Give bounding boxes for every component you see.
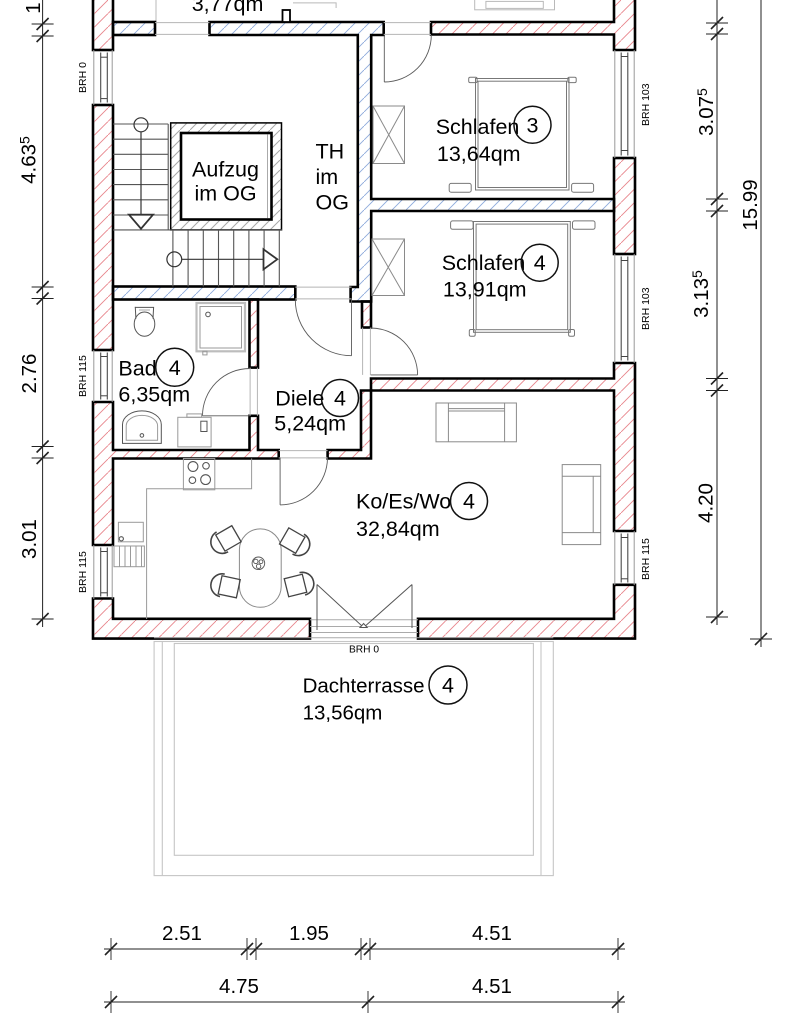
svg-text:BRH 0: BRH 0	[349, 645, 379, 656]
svg-text:4: 4	[534, 251, 546, 275]
svg-text:3: 3	[527, 113, 539, 137]
svg-text:13,56qm: 13,56qm	[303, 702, 383, 725]
svg-text:BRH 0: BRH 0	[77, 62, 89, 93]
svg-text:Schlafen: Schlafen	[442, 251, 526, 275]
svg-text:3.01: 3.01	[18, 519, 41, 559]
svg-text:TH: TH	[316, 139, 345, 163]
svg-text:BRH 115: BRH 115	[77, 355, 89, 397]
svg-text:Dachterrasse: Dachterrasse	[303, 674, 425, 697]
svg-text:im OG: im OG	[194, 182, 256, 206]
svg-text:BRH 115: BRH 115	[640, 538, 652, 580]
svg-text:4.20: 4.20	[695, 483, 718, 523]
svg-text:2.76: 2.76	[18, 354, 41, 394]
svg-text:4.75: 4.75	[219, 975, 259, 998]
svg-text:15.99: 15.99	[739, 179, 762, 230]
svg-text:4: 4	[334, 387, 346, 411]
svg-text:4.51: 4.51	[472, 922, 512, 945]
svg-text:13,64qm: 13,64qm	[437, 142, 521, 166]
svg-text:3,77qm: 3,77qm	[192, 0, 264, 16]
svg-text:4: 4	[169, 356, 181, 380]
svg-text:im: im	[316, 165, 339, 189]
svg-text:OG: OG	[316, 190, 349, 214]
svg-text:Schlafen: Schlafen	[436, 115, 520, 139]
svg-text:Ko/Es/Wo: Ko/Es/Wo	[356, 490, 451, 514]
svg-text:Diele: Diele	[275, 387, 324, 411]
svg-text:4: 4	[442, 674, 454, 698]
svg-text:2.51: 2.51	[162, 922, 202, 945]
svg-text:32,84qm: 32,84qm	[356, 517, 440, 541]
svg-text:5,24qm: 5,24qm	[274, 412, 346, 436]
svg-text:1: 1	[22, 2, 45, 13]
svg-text:4.51: 4.51	[472, 975, 512, 998]
svg-text:BRH 103: BRH 103	[640, 83, 652, 126]
svg-text:Bad: Bad	[118, 357, 156, 381]
svg-text:4: 4	[463, 490, 475, 514]
svg-text:1.95: 1.95	[289, 922, 329, 945]
svg-text:BRH 115: BRH 115	[77, 551, 89, 593]
svg-text:13,91qm: 13,91qm	[443, 278, 527, 302]
svg-text:BRH 103: BRH 103	[640, 287, 652, 330]
svg-text:Aufzug: Aufzug	[192, 157, 259, 181]
